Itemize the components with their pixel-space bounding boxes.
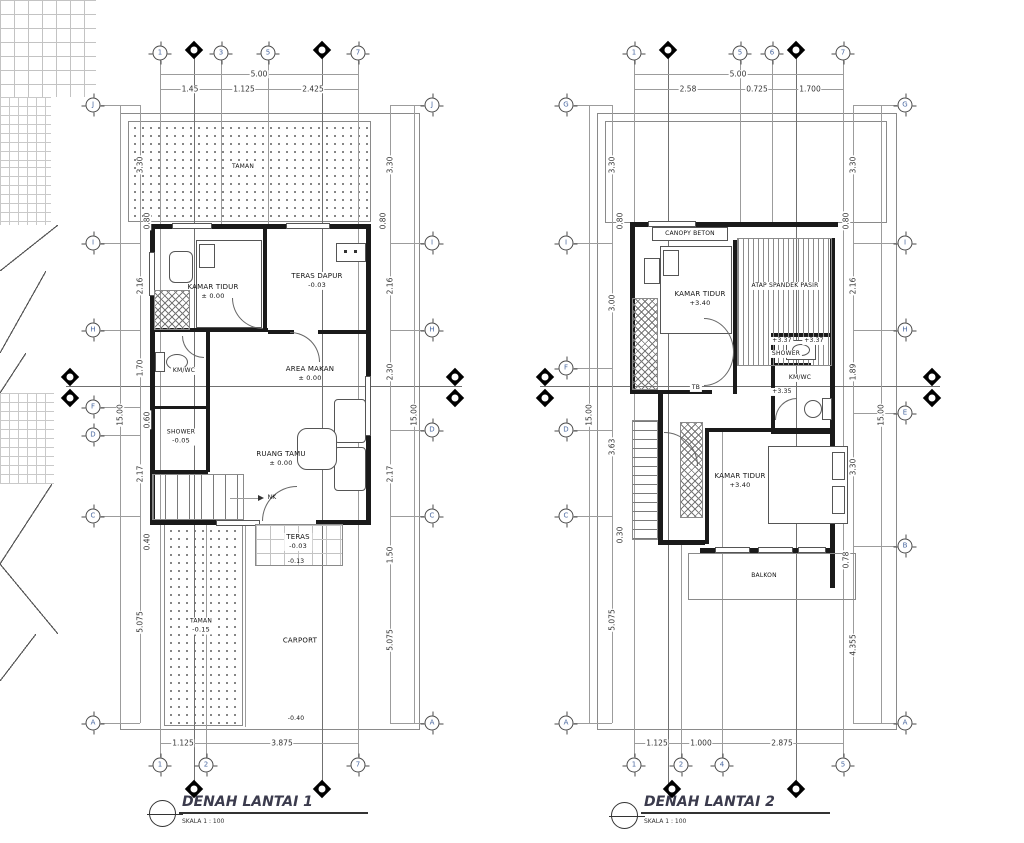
- dim-label: 3.63: [608, 438, 616, 457]
- section-marker: [313, 41, 331, 59]
- dim-label: 2.425: [301, 85, 324, 93]
- gridline: [740, 60, 741, 225]
- grid-bubble: I: [425, 236, 440, 251]
- dim-label: 3.30: [849, 156, 857, 175]
- dim-label: 1.125: [171, 739, 194, 747]
- grid-bubble: 1: [153, 758, 168, 773]
- dim-label: 3.30: [136, 156, 144, 175]
- room-label-kmwc: KM/WC: [787, 374, 813, 382]
- dim-label: 1.89: [849, 363, 857, 382]
- wall: [150, 520, 216, 525]
- bed-pillow: [663, 250, 679, 276]
- gridline: [268, 60, 269, 225]
- dim-label: 3.00: [608, 294, 616, 313]
- grid-bubble: J: [425, 98, 440, 113]
- dim-label: 2.16: [136, 277, 144, 296]
- grid-bubble: H: [86, 323, 101, 338]
- grid-bubble: C: [86, 509, 101, 524]
- bed-pillow: [199, 244, 215, 268]
- dim-label: 2.30: [386, 363, 394, 382]
- dim-label: 4.355: [849, 633, 857, 656]
- cabinet: [680, 422, 703, 518]
- bathroom-floor: [0, 97, 51, 167]
- shower-floor: [0, 167, 51, 225]
- dim-label: 1.125: [645, 739, 668, 747]
- grid-bubble: F: [559, 361, 574, 376]
- grid-bubble: 2: [674, 758, 689, 773]
- dim-label: 15.00: [410, 403, 418, 426]
- plan2-title: DENAH LANTAI 2: [641, 794, 830, 814]
- title-symbol: [611, 802, 638, 829]
- dim-label: 5.075: [608, 608, 616, 631]
- wall: [318, 330, 368, 334]
- grid-bubble: A: [425, 716, 440, 731]
- gridline: [843, 60, 844, 743]
- dim-label: 0.78: [842, 551, 850, 570]
- grid-bubble: A: [898, 716, 913, 731]
- section-marker: [923, 389, 941, 407]
- bed-diagonal: [0, 564, 58, 634]
- dim-label: 15.00: [116, 403, 124, 426]
- dim-label: 0.80: [379, 212, 387, 231]
- tb-label: TB: [690, 384, 702, 392]
- bed-diagonal: [0, 484, 52, 564]
- stair-diagonal: [0, 225, 58, 271]
- level-tag: +3.37: [770, 337, 793, 345]
- section-line: [540, 386, 940, 387]
- room-label-ruang-tamu: RUANG TAMU ± 0.00: [256, 450, 305, 468]
- stair-arrow-head: [258, 495, 264, 501]
- section-line: [322, 58, 323, 795]
- wardrobe: [632, 298, 658, 390]
- window: [216, 520, 260, 526]
- toilet-bowl: [804, 400, 822, 418]
- dim-line: [853, 105, 854, 723]
- grid-bubble: I: [86, 236, 101, 251]
- stairs: [152, 474, 244, 520]
- section-marker: [61, 389, 79, 407]
- dim-label: 2.16: [386, 277, 394, 296]
- toilet-tank: [822, 398, 832, 420]
- level-tag: -0.40: [288, 715, 305, 723]
- section-marker: [446, 389, 464, 407]
- grid-bubble: C: [559, 509, 574, 524]
- section-marker: [659, 41, 677, 59]
- window: [286, 223, 330, 229]
- grid-bubble: 1: [627, 46, 642, 61]
- wall: [658, 540, 705, 545]
- wall: [263, 224, 267, 332]
- floor-plan-sheet: TAMAN KAMAR TIDUR ± 0.00 TERAS DAPUR -0.…: [0, 0, 1024, 843]
- balcony-diagonal: [0, 634, 36, 681]
- wall: [705, 428, 709, 544]
- wall: [366, 224, 371, 522]
- section-marker: [787, 41, 805, 59]
- dim-label: 0.40: [143, 533, 151, 552]
- dim-label: 3.875: [270, 739, 293, 747]
- dim-label: 2.17: [386, 465, 394, 484]
- room-label-taman-atas: TAMAN: [230, 163, 256, 171]
- wardrobe: [154, 290, 190, 330]
- section-line: [668, 58, 669, 795]
- grid-bubble: C: [425, 509, 440, 524]
- dim-label: 15.00: [877, 403, 885, 426]
- dim-label: 5.075: [136, 610, 144, 633]
- dim-label: 5.075: [386, 628, 394, 651]
- wall: [658, 392, 663, 542]
- dim-label: 1.50: [386, 546, 394, 565]
- title-symbol: [149, 800, 176, 827]
- grid-bubble: B: [898, 539, 913, 554]
- dim-label: 1.000: [689, 739, 712, 747]
- section-marker: [185, 41, 203, 59]
- room-label-balkon: BALKON: [749, 572, 779, 580]
- level-tag: +3.37: [802, 337, 825, 345]
- window: [172, 223, 212, 229]
- sofa: [334, 399, 366, 443]
- bed-pillow: [832, 452, 845, 480]
- grid-bubble: F: [86, 400, 101, 415]
- wall: [705, 428, 835, 432]
- sofa: [334, 447, 366, 491]
- room-label-taman-bawah: TAMAN -0.15: [188, 618, 214, 635]
- room-label-kamar-tidur: KAMAR TIDUR ± 0.00: [187, 283, 238, 301]
- gridline: [634, 60, 635, 743]
- dim-label: 0.60: [143, 411, 151, 430]
- metal-roof-hatch: [737, 238, 832, 366]
- dim-label: 1.125: [232, 85, 255, 93]
- dim-label: 15.00: [585, 403, 593, 426]
- gridline: [245, 524, 246, 727]
- bed-pillow: [832, 486, 845, 514]
- section-marker: [446, 368, 464, 386]
- kitchen-terrace-floor: [0, 0, 96, 97]
- grid-bubble: 4: [715, 758, 730, 773]
- grid-bubble: 7: [836, 46, 851, 61]
- dim-label: 3.30: [849, 458, 857, 477]
- section-marker: [536, 368, 554, 386]
- level-tag: +3.35: [770, 388, 793, 396]
- roof-outline: [605, 121, 887, 223]
- section-marker: [61, 368, 79, 386]
- roof-label: ATAP SPANDEK PASIR: [749, 282, 820, 290]
- grid-bubble: I: [898, 236, 913, 251]
- dim-label: 2.16: [849, 277, 857, 296]
- grid-bubble: J: [86, 98, 101, 113]
- plan1-scale: SKALA 1 : 100: [182, 818, 224, 825]
- gridline: [221, 60, 222, 225]
- room-label-teras-dapur: TERAS DAPUR -0.03: [289, 272, 344, 290]
- section-line: [66, 386, 462, 387]
- grid-bubble: 7: [351, 46, 366, 61]
- room-label-kmwc: KM/WC: [171, 367, 197, 375]
- grid-bubble: A: [559, 716, 574, 731]
- dim-label: 1.70: [136, 359, 144, 378]
- dim-label: 0.725: [745, 85, 768, 93]
- wall: [150, 406, 208, 409]
- section-line: [194, 58, 195, 795]
- garden-hatch-top: [128, 121, 371, 222]
- section-marker: [536, 389, 554, 407]
- room-label-kamar-tidur-1: KAMAR TIDUR +3.40: [674, 290, 725, 308]
- stove-burner: [344, 250, 347, 253]
- level-tag: -0.13: [288, 558, 305, 566]
- grid-bubble: 6: [765, 46, 780, 61]
- room-label-carport: CARPORT: [283, 636, 317, 645]
- room-label-area-makan: AREA MAKAN ± 0.00: [286, 365, 334, 383]
- plan1-title: DENAH LANTAI 1: [179, 794, 368, 814]
- grid-bubble: D: [425, 423, 440, 438]
- stair-arrow-line: [230, 498, 258, 499]
- grid-bubble: E: [898, 406, 913, 421]
- dim-label: 0.80: [143, 212, 151, 231]
- dim-label: 2.17: [136, 465, 144, 484]
- stair-up-label: NK: [268, 494, 277, 502]
- grid-bubble: I: [559, 236, 574, 251]
- dim-label: 1.700: [798, 85, 821, 93]
- grid-bubble: D: [86, 428, 101, 443]
- kitchen-counter: [336, 243, 366, 262]
- dim-label: 3.30: [608, 156, 616, 175]
- plan2-scale: SKALA 1 : 100: [644, 818, 686, 825]
- dim-label: 0.80: [842, 212, 850, 231]
- bathroom-floor: [0, 393, 54, 484]
- dim-label: 5.00: [729, 70, 748, 78]
- grid-bubble: 5: [261, 46, 276, 61]
- gridline: [681, 545, 682, 763]
- bed-diagonal: [0, 271, 46, 353]
- dim-label: 1.45: [181, 85, 200, 93]
- grid-bubble: 5: [836, 758, 851, 773]
- dim-label: 3.30: [386, 156, 394, 175]
- grid-bubble: 5: [733, 46, 748, 61]
- toilet-tank: [155, 352, 165, 372]
- dim-label: 2.875: [770, 739, 793, 747]
- room-label-teras: TERAS -0.03: [284, 533, 312, 551]
- room-label-shower: SHOWER -0.05: [165, 429, 197, 446]
- grid-bubble: G: [898, 98, 913, 113]
- section-line: [796, 58, 797, 795]
- grid-bubble: D: [559, 423, 574, 438]
- desk: [644, 258, 660, 284]
- grid-bubble: 3: [214, 46, 229, 61]
- gridline: [206, 520, 207, 763]
- grid-bubble: A: [86, 716, 101, 731]
- stair-diagonal: [0, 353, 26, 393]
- grid-bubble: H: [898, 323, 913, 338]
- wall: [206, 332, 210, 472]
- dim-label: 0.30: [616, 526, 624, 545]
- grid-bubble: 1: [153, 46, 168, 61]
- bedside-table: [169, 251, 193, 283]
- room-label-shower: SHOWER: [770, 350, 802, 358]
- stove-burner: [354, 250, 357, 253]
- room-label-kamar-tidur-2: KAMAR TIDUR +3.40: [714, 472, 765, 490]
- stairs: [632, 420, 658, 540]
- grid-bubble: G: [559, 98, 574, 113]
- grid-bubble: 1: [627, 758, 642, 773]
- dim-label: 0.80: [616, 212, 624, 231]
- grid-bubble: H: [425, 323, 440, 338]
- section-marker: [923, 368, 941, 386]
- grid-bubble: 2: [199, 758, 214, 773]
- grid-bubble: 7: [351, 758, 366, 773]
- dim-label: 5.00: [250, 70, 269, 78]
- gridline: [772, 60, 773, 225]
- gridline: [160, 60, 161, 743]
- canopy-label: CANOPY BETON: [663, 230, 717, 238]
- dim-label: 2.58: [679, 85, 698, 93]
